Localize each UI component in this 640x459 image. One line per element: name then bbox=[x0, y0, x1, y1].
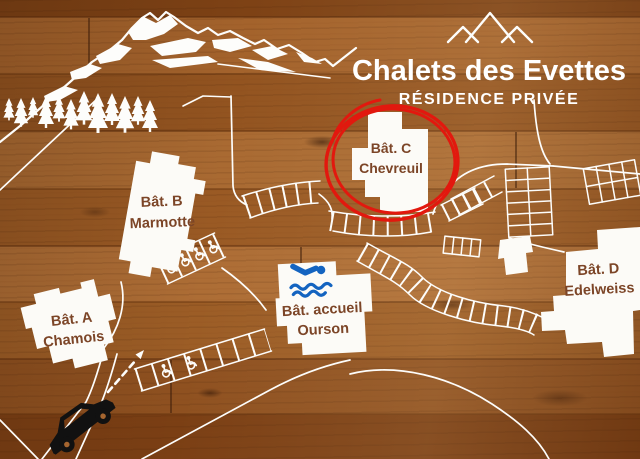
building-c: Bât. C Chevreuil bbox=[352, 112, 428, 212]
building-c-label-2: Chevreuil bbox=[359, 160, 423, 176]
building-d: Bât. D Edelweiss bbox=[541, 227, 640, 357]
site-map: Chalets des Evettes RÉSIDENCE PRIVÉE bbox=[0, 0, 640, 459]
parking-row-middle bbox=[242, 181, 320, 218]
parking-row-cluster bbox=[443, 236, 481, 257]
sign-subtitle: RÉSIDENCE PRIVÉE bbox=[399, 89, 579, 108]
building-accueil: Bât. accueil Ourson bbox=[274, 259, 375, 356]
parking-grid bbox=[505, 167, 552, 237]
parking-row-entrance bbox=[135, 329, 272, 391]
building-accueil-label-2: Ourson bbox=[297, 321, 349, 340]
building-a: Bât. A Chamois bbox=[18, 276, 125, 377]
building-b: Bât. B Marmotte bbox=[115, 149, 209, 284]
building-b-label-2: Marmotte bbox=[130, 214, 196, 232]
pine-trees-icon bbox=[3, 91, 158, 133]
parking-row-slant bbox=[451, 176, 502, 215]
building-b-label-1: Bât. B bbox=[140, 193, 182, 210]
building-d-label-1: Bât. D bbox=[577, 261, 620, 279]
wheelchair-icon bbox=[206, 238, 219, 254]
sign-title: Chalets des Evettes bbox=[352, 55, 626, 87]
direction-arrow bbox=[108, 350, 144, 392]
mountain-logo-icon bbox=[448, 13, 532, 42]
wooden-sign-board: Chalets des Evettes RÉSIDENCE PRIVÉE bbox=[0, 0, 640, 459]
building-c-label-1: Bât. C bbox=[371, 140, 411, 156]
parking-grid-edge bbox=[583, 160, 640, 204]
annex-building bbox=[498, 236, 533, 275]
mountain-range-icon bbox=[0, 12, 356, 142]
